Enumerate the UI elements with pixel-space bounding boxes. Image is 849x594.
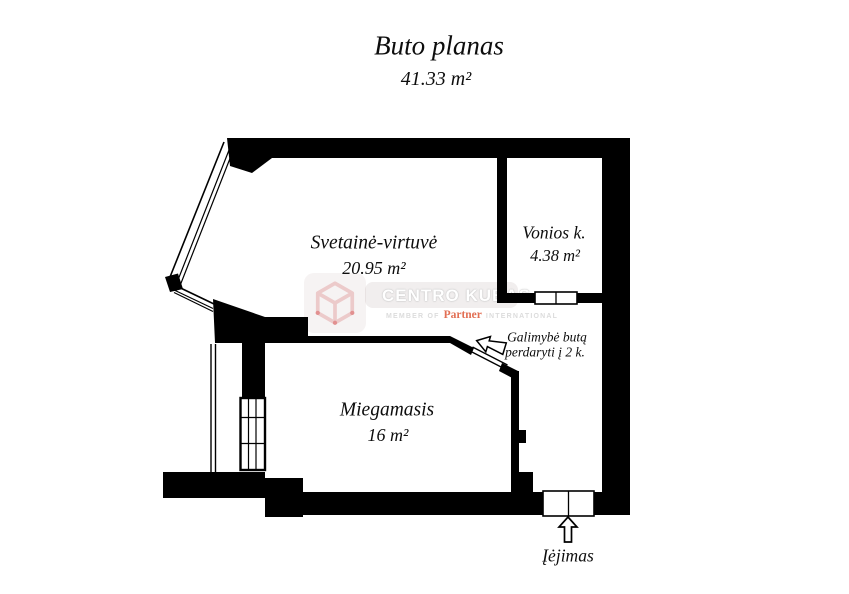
page-title: Buto planas xyxy=(374,33,504,60)
wall-notch-1 xyxy=(519,430,526,443)
bedroom-window xyxy=(240,398,265,470)
annotation-line-1: Galimybė butą xyxy=(507,330,587,344)
entrance-door-sill xyxy=(543,491,594,516)
bottom-wall-right xyxy=(594,492,630,515)
bay-window-glazing xyxy=(165,142,235,312)
room-label-bedroom: Miegamasis xyxy=(340,400,434,420)
entrance-arrow-icon xyxy=(559,517,577,542)
top-wall-end-cap xyxy=(227,138,272,173)
room-label-bathroom: Vonios k. xyxy=(522,224,585,242)
room-label-living-kitchen: Svetainė-virtuvė xyxy=(311,233,438,253)
watermark-member-suffix: INTERNATIONAL xyxy=(486,313,558,320)
room-area-living-kitchen: 20.95 m² xyxy=(342,259,405,277)
floor-plan-page: CENTRO KUBAS MEMBER OF Partner INTERNATI… xyxy=(0,0,849,594)
bedroom-right-wall xyxy=(511,371,519,492)
entrance-label: Įėjimas xyxy=(542,547,594,565)
right-wall xyxy=(602,138,630,515)
watermark-brand-bar: CENTRO KUBAS xyxy=(365,282,518,308)
bottom-wall-left xyxy=(163,472,265,498)
walls xyxy=(163,138,630,517)
top-wall xyxy=(232,138,630,158)
convert-arrow-icon xyxy=(474,333,506,357)
bathroom-door-sill xyxy=(535,292,577,304)
room-area-bathroom: 4.38 m² xyxy=(530,248,580,265)
annotation-line-2: perdaryti į 2 k. xyxy=(505,345,585,359)
bottom-wall-mid xyxy=(303,492,543,515)
room-area-bedroom: 16 m² xyxy=(368,426,409,444)
bottom-wall-step xyxy=(265,478,303,517)
bedroom-north-wall xyxy=(303,336,450,343)
bay-corner-post xyxy=(165,274,183,293)
watermark-member-line: MEMBER OF Partner INTERNATIONAL xyxy=(386,309,558,321)
watermark-member-prefix: MEMBER OF xyxy=(386,313,440,320)
wall-notch-2 xyxy=(519,472,533,492)
cube-logo-icon xyxy=(312,280,358,326)
watermark-partner-text: Partner xyxy=(444,309,482,321)
balcony-glazing xyxy=(211,344,216,472)
total-area: 41.33 m² xyxy=(401,69,471,89)
bedroom-diagonal-wall-upper xyxy=(450,336,474,355)
watermark-brand-text: CENTRO KUBAS xyxy=(382,282,531,308)
living-bedroom-wall xyxy=(213,299,308,343)
watermark-logo-tile xyxy=(304,273,366,333)
window-pier xyxy=(242,343,265,400)
